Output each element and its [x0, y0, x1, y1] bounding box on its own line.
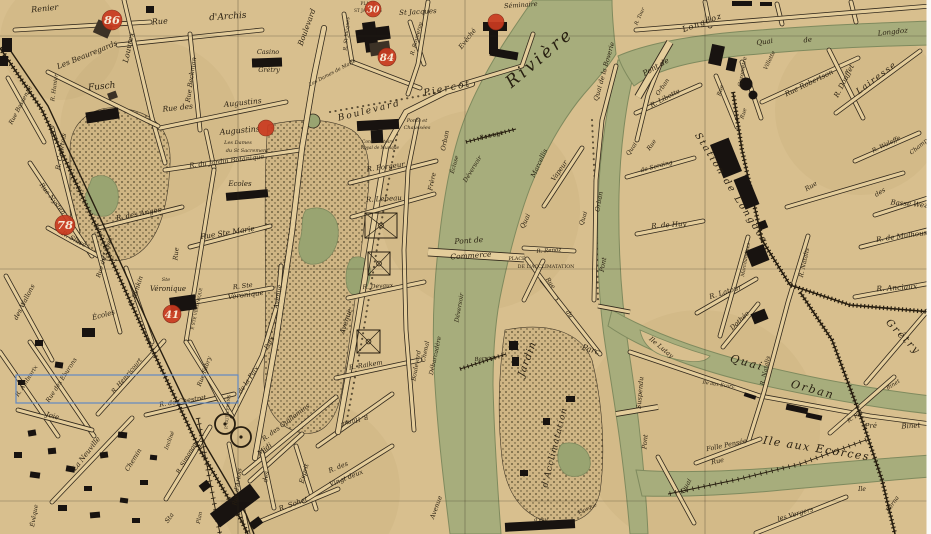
poi-marker-number: 30	[367, 4, 380, 15]
building	[150, 455, 157, 461]
building	[84, 486, 92, 491]
building	[512, 357, 519, 366]
map-label: Pont	[640, 434, 649, 451]
building	[760, 2, 772, 6]
poi-marker	[488, 14, 504, 30]
poi-marker: 86	[102, 10, 122, 30]
map-canvas[interactable]: RenierRued'ArchisLes BeauregardsLouvrexF…	[0, 0, 931, 534]
building	[118, 432, 128, 439]
map-label: de	[803, 35, 813, 44]
scan-edge	[927, 0, 931, 534]
building	[509, 341, 518, 350]
building	[543, 418, 550, 425]
poi-marker: 30	[365, 1, 381, 17]
map-label: Royal de Musique	[360, 145, 400, 150]
building	[0, 56, 8, 66]
building	[566, 396, 575, 402]
poi-marker-number: 86	[104, 13, 120, 27]
building	[520, 470, 528, 476]
map-label: Chaussées	[404, 124, 431, 131]
poi-marker-number: 78	[57, 218, 73, 232]
poi-marker-circle	[258, 120, 274, 136]
poi-marker-circle	[488, 14, 504, 30]
building	[132, 518, 140, 523]
poi-marker	[258, 120, 274, 136]
building	[140, 480, 148, 485]
poi-marker-number: 84	[380, 52, 394, 64]
building	[35, 340, 43, 346]
building	[146, 6, 154, 13]
building	[58, 505, 67, 511]
poi-marker-number: 41	[165, 309, 179, 321]
gasometer-tank	[749, 91, 758, 100]
building	[48, 448, 57, 455]
map-label: Ponts et	[406, 118, 429, 124]
map-label: Pré	[863, 422, 877, 431]
building	[90, 512, 100, 519]
building	[100, 451, 109, 458]
map-label: Grétry	[258, 66, 280, 74]
building	[82, 328, 95, 337]
map-label: PLACE	[508, 256, 526, 262]
map-label: Véronique	[150, 285, 186, 293]
poi-marker: 41	[163, 305, 181, 323]
building	[14, 452, 22, 458]
building	[2, 38, 12, 52]
map-label: Binet	[900, 421, 921, 430]
map-label: Ste	[162, 277, 170, 283]
poi-marker: 84	[378, 48, 396, 66]
map-label: Ecoles	[227, 180, 252, 188]
map-label: Ile	[857, 486, 866, 493]
map-label: d'eau	[534, 517, 548, 523]
map-label: Rue	[171, 247, 180, 262]
map-viewport[interactable]: RenierRued'ArchisLes BeauregardsLouvrexF…	[0, 0, 931, 534]
poi-marker: 78	[55, 215, 75, 235]
building	[55, 361, 64, 368]
map-label: Les Dames	[223, 140, 252, 146]
rail-turntable-hub	[239, 435, 242, 438]
building	[732, 1, 752, 6]
map-label: Rue	[151, 16, 169, 26]
map-label: DE L'ACCLIMATATION	[518, 264, 575, 270]
map-label: Casino	[257, 48, 279, 56]
jardin-acclimatation-park-trees	[499, 327, 603, 523]
